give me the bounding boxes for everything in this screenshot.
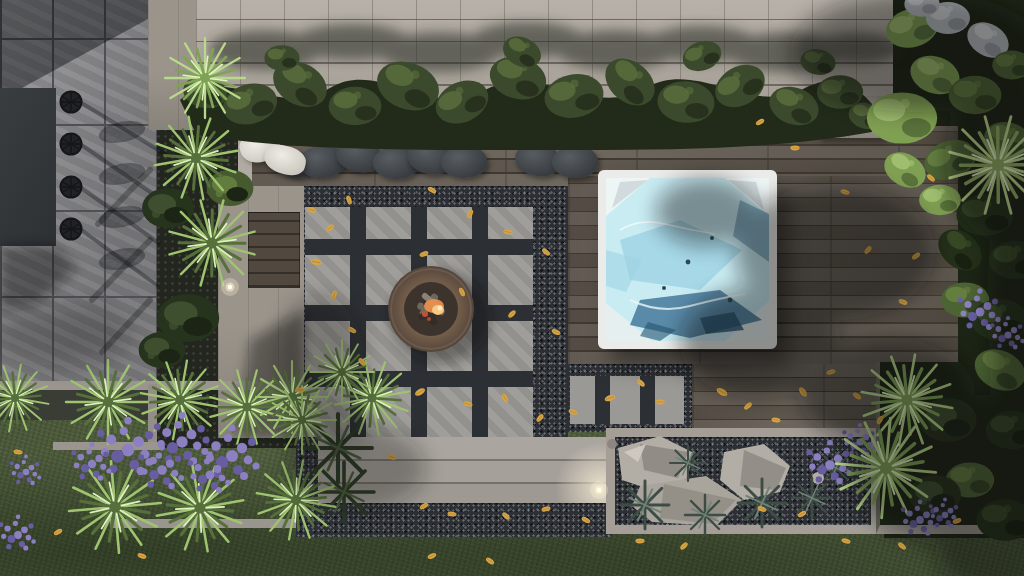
fire-pit <box>388 266 491 363</box>
backyard-render <box>0 0 1024 576</box>
dining-chairs <box>61 92 82 240</box>
organic-overlay <box>0 0 1024 576</box>
rock-planter-contents <box>607 423 877 535</box>
